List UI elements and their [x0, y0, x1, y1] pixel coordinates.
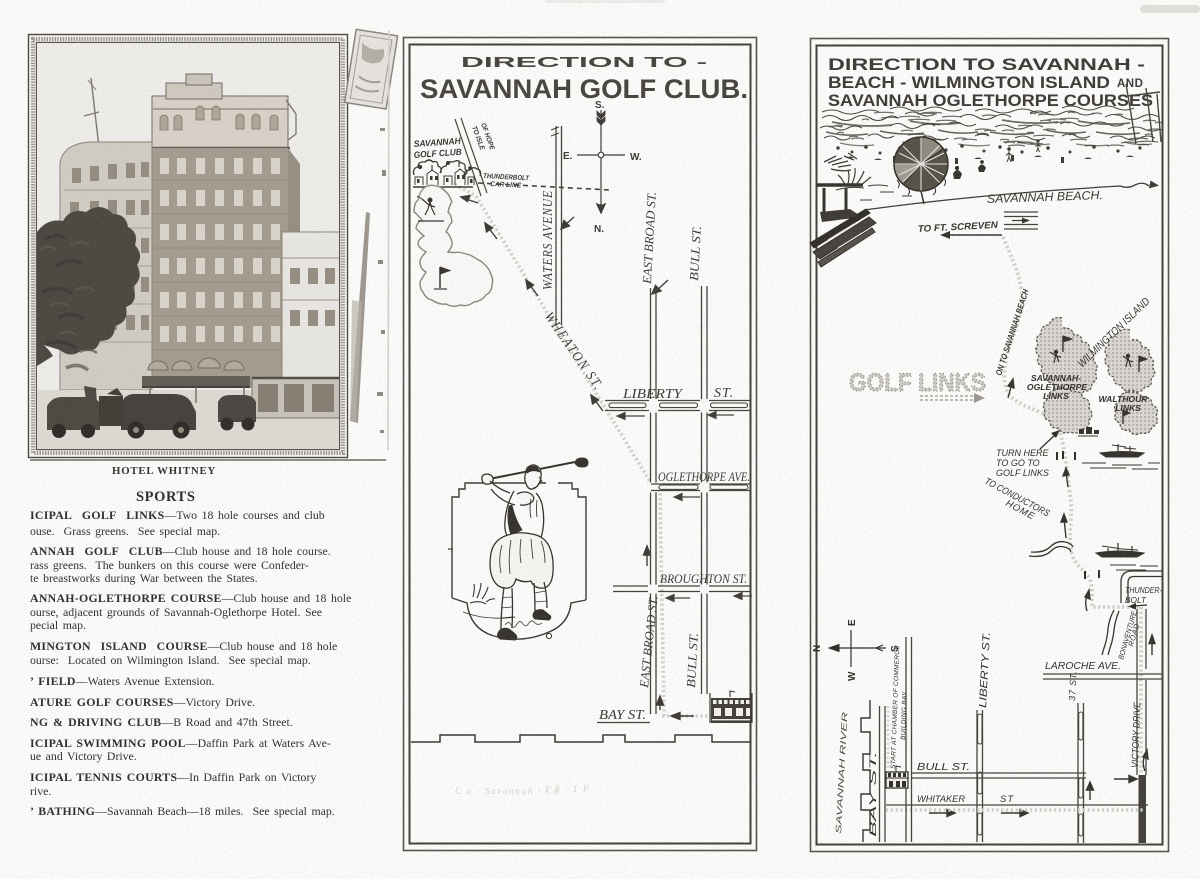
svg-text:EAST BROAD ST.: EAST BROAD ST. [640, 192, 659, 286]
svg-text:BULL ST.: BULL ST. [687, 225, 704, 281]
svg-text:BULL ST.: BULL ST. [917, 761, 970, 773]
svg-text:BUILDING BAY: BUILDING BAY [900, 691, 909, 740]
svg-text:TURN HERE: TURN HERE [996, 448, 1049, 458]
svg-text:GOLF LINKS: GOLF LINKS [849, 369, 986, 397]
svg-text:WATERS AVENUE: WATERS AVENUE [540, 190, 555, 290]
svg-text:ST: ST [1000, 794, 1014, 805]
svg-text:LIBERTY: LIBERTY [622, 387, 685, 402]
svg-text:LINKS: LINKS [1043, 391, 1069, 401]
svg-text:THUNDER-: THUNDER- [1125, 585, 1162, 595]
svg-text:E.: E. [563, 151, 573, 162]
svg-text:BULL ST.: BULL ST. [684, 632, 701, 688]
svg-text:N.: N. [594, 224, 604, 235]
svg-text:SAVANNAH GOLF CLUB.: SAVANNAH GOLF CLUB. [420, 74, 748, 104]
svg-text:ON TO SAVANNAH BEACH: ON TO SAVANNAH BEACH [993, 287, 1031, 376]
svg-text:LINKS: LINKS [1115, 403, 1141, 413]
svg-text:SAVANNAH BEACH.: SAVANNAH BEACH. [987, 188, 1103, 206]
svg-text:GOLF CLUB: GOLF CLUB [413, 147, 462, 160]
svg-text:SAVANNAH RIVER: SAVANNAH RIVER [834, 711, 849, 834]
svg-text:TO GO TO: TO GO TO [996, 458, 1040, 468]
svg-text:WHEATON ST.: WHEATON ST. [541, 310, 606, 394]
svg-text:LIBERTY ST.: LIBERTY ST. [977, 632, 993, 709]
svg-text:TO FT. SCREVEN: TO FT. SCREVEN [918, 220, 1000, 235]
svg-text:LAROCHE AVE.: LAROCHE AVE. [1045, 660, 1121, 672]
svg-text:S.: S. [595, 100, 605, 111]
svg-text:· 1 8 · 1 P: · 1 8 · 1 P [537, 785, 590, 795]
svg-text:BAY ST.: BAY ST. [599, 707, 646, 722]
svg-text:E: E [847, 619, 858, 626]
svg-text:W.: W. [630, 152, 642, 163]
svg-text:CAR LINE: CAR LINE [490, 181, 522, 190]
svg-text:VICTORY DRIVE: VICTORY DRIVE [1130, 701, 1143, 768]
svg-text:DIRECTION TO -: DIRECTION TO - [461, 54, 707, 71]
svg-text:WHITAKER: WHITAKER [917, 794, 966, 804]
svg-text:DIRECTION TO SAVANNAH -: DIRECTION TO SAVANNAH - [828, 55, 1145, 74]
svg-text:BEACH - WILMINGTON ISLAND: BEACH - WILMINGTON ISLAND [828, 73, 1110, 92]
svg-text:S: S [890, 645, 901, 652]
svg-text:GOLF LINKS: GOLF LINKS [996, 468, 1049, 478]
svg-text:START AT CHAMBER OF COMMERCE: START AT CHAMBER OF COMMERCE [890, 645, 901, 769]
svg-text:EAST BROAD ST.: EAST BROAD ST. [637, 595, 661, 689]
svg-text:37 ST.: 37 ST. [1067, 670, 1079, 701]
svg-text:AND: AND [1117, 78, 1143, 90]
svg-text:OGLETHORPE AVE.: OGLETHORPE AVE. [658, 470, 750, 484]
svg-text:W: W [847, 671, 858, 681]
svg-text:BROUGHTON ST.: BROUGHTON ST. [660, 571, 747, 586]
svg-text:SAVANNAH OGLETHORPE COURSES: SAVANNAH OGLETHORPE COURSES [828, 91, 1153, 110]
svg-text:N: N [812, 645, 823, 652]
svg-text:ST.: ST. [714, 386, 734, 401]
